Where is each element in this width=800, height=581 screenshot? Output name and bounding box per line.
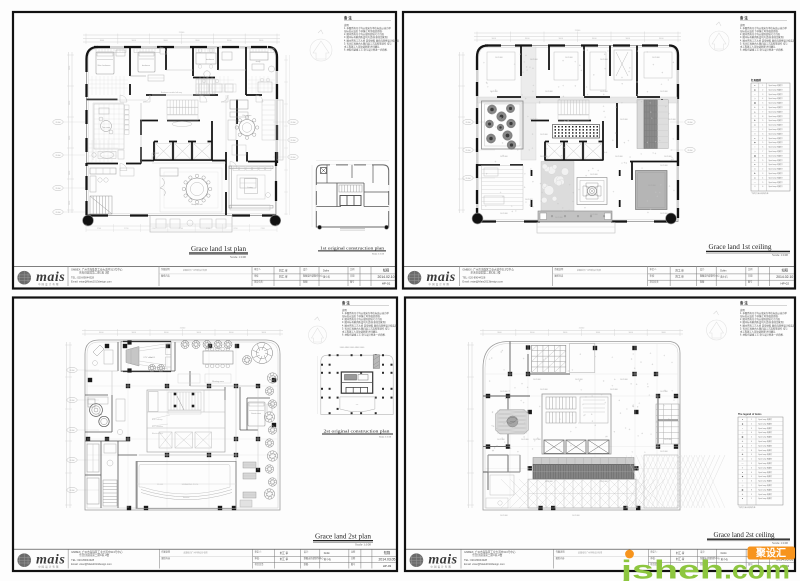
svg-text:2: 2	[762, 169, 763, 171]
svg-text:CH 2.800: CH 2.800	[620, 119, 628, 121]
svg-text:知翔: 知翔	[782, 268, 788, 273]
svg-text:5400 4800 5400 4800 5400: 5400 4800 5400 4800 5400	[340, 347, 365, 349]
svg-text:CH 2.800: CH 2.800	[540, 156, 548, 158]
svg-text:1: 1	[762, 85, 763, 87]
svg-text:5: 5	[762, 182, 763, 184]
svg-text:▲: ▲	[754, 163, 756, 166]
svg-text:3900: 3900	[69, 201, 71, 205]
svg-text:2F-A6: 2F-A6	[291, 139, 296, 142]
svg-text:说明: 说明	[344, 23, 349, 27]
svg-text:2F-A6: 2F-A6	[291, 156, 296, 159]
svg-text:CH 2.800: CH 2.800	[500, 213, 508, 215]
svg-text:刘工.审: 刘工.审	[280, 557, 289, 561]
svg-text:刘工.审: 刘工.审	[279, 268, 288, 272]
svg-text:CH 2.800: CH 2.800	[590, 214, 598, 216]
svg-text:SPA: SPA	[98, 413, 103, 416]
svg-text:说明: 说明	[342, 308, 347, 312]
svg-text:HP-03: HP-03	[383, 564, 392, 568]
svg-text:TEL: 020-89044328: TEL: 020-89044328	[462, 276, 485, 280]
svg-text:2F-3.05: 2F-3.05	[157, 484, 163, 486]
svg-text:Scale 1:100: Scale 1:100	[230, 256, 247, 259]
svg-text:2F-A6: 2F-A6	[70, 429, 75, 432]
svg-text:CH 2.800: CH 2.800	[648, 185, 656, 187]
svg-text:3900: 3900	[69, 171, 71, 175]
svg-text:2F-A6: 2F-A6	[56, 154, 61, 157]
svg-text:Banquet hall: Banquet hall	[191, 203, 203, 206]
svg-text:CH 2.800: CH 2.800	[600, 481, 608, 483]
svg-text:2014.02.10: 2014.02.10	[378, 275, 395, 279]
svg-text:CH 2.800: CH 2.800	[490, 91, 498, 93]
svg-text:CH 2.800: CH 2.800	[615, 156, 623, 158]
svg-text:8: 8	[762, 116, 763, 118]
svg-text:3900: 3900	[69, 66, 71, 70]
svg-text:刘工.审: 刘工.审	[675, 275, 684, 279]
svg-text:9: 9	[751, 494, 752, 496]
svg-text:2: 2	[751, 463, 752, 465]
svg-text:5: 5	[762, 142, 763, 144]
svg-text:9: 9	[751, 454, 752, 456]
svg-text:Bedroom corridor hall way: Bedroom corridor hall way	[161, 92, 182, 94]
svg-text:Meeting room: Meeting room	[212, 380, 224, 383]
svg-text:5: 5	[762, 103, 763, 105]
svg-text:刘工.审: 刘工.审	[280, 551, 289, 555]
svg-text:CH 2.800: CH 2.800	[530, 59, 538, 61]
svg-text:2F-A6: 2F-A6	[70, 489, 75, 492]
svg-text:2700: 2700	[261, 228, 265, 230]
svg-text:3900: 3900	[69, 136, 71, 140]
svg-text:1: 1	[751, 419, 752, 421]
svg-text:3: 3	[762, 133, 763, 135]
svg-text:Email: vstar@Mais2013design.co: Email: vstar@Mais2013design.com	[71, 562, 112, 566]
svg-text:Tea room: Tea room	[102, 127, 111, 129]
svg-text:Living: Living	[247, 187, 252, 189]
svg-text:乐天创意园第二期C栋 2楼: 乐天创意园第二期C栋 2楼	[471, 271, 501, 275]
svg-text:Electrical duct: Electrical duct	[152, 432, 164, 435]
svg-text:知翔: 知翔	[383, 268, 389, 273]
svg-text:CH 2.800: CH 2.800	[497, 439, 505, 441]
svg-text:2700: 2700	[179, 228, 183, 230]
svg-text:黄小石: 黄小石	[720, 275, 728, 279]
svg-text:GMBEX: 广州市海珠区工业大道中313号中心: GMBEX: 广州市海珠区工业大道中313号中心	[462, 267, 514, 271]
svg-text:bedroom: bedroom	[206, 59, 214, 61]
svg-text:备 注: 备 注	[343, 15, 352, 20]
svg-text:2F-A6: 2F-A6	[466, 177, 471, 180]
svg-text:3900: 3900	[69, 101, 71, 105]
svg-text:◎: ◎	[754, 124, 756, 127]
svg-text:6: 6	[762, 107, 763, 109]
svg-text:SPC chamber: SPC chamber	[152, 426, 164, 428]
svg-text:2F-A6: 2F-A6	[70, 399, 75, 402]
svg-text:CH 2.800: CH 2.800	[521, 439, 529, 441]
svg-text:Dolim: Dolim	[720, 269, 726, 272]
svg-text:Grace land 2st ceiling: Grace land 2st ceiling	[714, 530, 775, 539]
svg-text:2700: 2700	[151, 228, 155, 230]
svg-text:HP-01: HP-01	[382, 281, 391, 285]
svg-text:Grace land 1st plan: Grace land 1st plan	[191, 244, 246, 253]
svg-text:2F-A6: 2F-A6	[291, 121, 296, 124]
svg-text:2F-A6: 2F-A6	[688, 121, 693, 124]
svg-text:CH 2.800: CH 2.800	[660, 451, 668, 453]
svg-text:CH 2.800: CH 2.800	[660, 391, 668, 393]
svg-text:SWIMMING POOL: SWIMMING POOL	[182, 484, 200, 486]
svg-text:CH 2.800: CH 2.800	[600, 59, 608, 61]
svg-text:CH 2.800: CH 2.800	[668, 119, 676, 121]
svg-text:2F-A6: 2F-A6	[466, 149, 471, 152]
svg-text:▣: ▣	[742, 488, 744, 491]
svg-text:TEL: 020-89044328: TEL: 020-89044328	[71, 276, 94, 280]
svg-text:6: 6	[751, 481, 752, 483]
svg-text:Terrace: Terrace	[183, 497, 191, 499]
svg-text:黄小石: 黄小石	[323, 275, 331, 279]
svg-text:4: 4	[762, 138, 763, 140]
svg-text:CH 2.800: CH 2.800	[664, 156, 672, 158]
svg-text:CH 2.800: CH 2.800	[555, 217, 563, 219]
svg-text:3: 3	[751, 467, 752, 469]
svg-text:2014.03.05: 2014.03.05	[378, 557, 395, 561]
svg-text:Scale 1:150: Scale 1:150	[372, 253, 385, 255]
svg-text:CH 2.800: CH 2.800	[572, 515, 580, 517]
svg-text:6: 6	[751, 441, 752, 443]
svg-text:2F-A6: 2F-A6	[466, 121, 471, 124]
svg-text:1: 1	[751, 459, 752, 461]
svg-text:▲: ▲	[742, 444, 744, 447]
svg-text:CH 2.800: CH 2.800	[533, 379, 541, 381]
svg-text:4: 4	[751, 432, 752, 434]
svg-text:Scale 1:100: Scale 1:100	[772, 542, 789, 545]
svg-text:2F-A6: 2F-A6	[56, 211, 61, 214]
svg-text:Scale 1:100: Scale 1:100	[355, 543, 372, 546]
svg-text:GMBEX: 广州市海珠区工业大道中313号中心: GMBEX: 广州市海珠区工业大道中313号中心	[464, 550, 516, 554]
svg-text:HP-02: HP-02	[781, 281, 790, 285]
svg-text:2st original construction plan: 2st original construction plan	[324, 428, 391, 433]
svg-text:GMBEX: 广州市海珠区工业大道中313号中心: GMBEX: 广州市海珠区工业大道中313号中心	[71, 550, 123, 554]
svg-text:3: 3	[751, 428, 752, 430]
svg-text:—: —	[754, 182, 756, 184]
svg-text:CH 2.800: CH 2.800	[660, 213, 668, 215]
svg-text:1: 1	[762, 125, 763, 127]
svg-text:3: 3	[762, 173, 763, 175]
svg-text:2F-A6: 2F-A6	[56, 187, 61, 190]
svg-text:中国设计有限: 中国设计有限	[429, 282, 451, 286]
svg-text:中国设计有限: 中国设计有限	[38, 565, 60, 569]
svg-text:7: 7	[762, 111, 763, 113]
svg-text:知翔: 知翔	[384, 550, 390, 555]
svg-text:灯具图例: 灯具图例	[750, 78, 762, 82]
svg-text:刘工.审: 刘工.审	[675, 268, 684, 272]
svg-text:CH 2.800: CH 2.800	[590, 174, 598, 176]
svg-text:聚设汇: 聚设汇	[755, 547, 786, 560]
svg-text:▣: ▣	[754, 102, 756, 105]
svg-text:The legend of items: The legend of items	[738, 413, 762, 416]
svg-text:—: —	[754, 129, 756, 131]
svg-text:CH 2.800: CH 2.800	[540, 389, 548, 391]
svg-text:8: 8	[762, 155, 763, 157]
svg-text:2700: 2700	[206, 228, 210, 230]
svg-text:CH 2.800: CH 2.800	[500, 156, 508, 158]
svg-text:2: 2	[762, 89, 763, 91]
svg-text:5: 5	[751, 437, 752, 439]
svg-text:CH 2.800: CH 2.800	[575, 379, 583, 381]
svg-text:Grace land 1st ceiling: Grace land 1st ceiling	[709, 242, 772, 251]
svg-text:CH 2.800: CH 2.800	[545, 91, 553, 93]
svg-text:中国设计有限: 中国设计有限	[38, 282, 60, 286]
svg-text:Mas. bedroom: Mas. bedroom	[98, 65, 111, 67]
svg-text:Email: vstar@Mais2013design.co: Email: vstar@Mais2013design.com	[71, 280, 112, 284]
svg-text:TEL: 020-89044328: TEL: 020-89044328	[464, 558, 487, 562]
svg-text:2700: 2700	[124, 228, 128, 230]
svg-text:CH 2.800: CH 2.800	[530, 119, 538, 121]
svg-text:2700: 2700	[97, 228, 101, 230]
svg-text:4: 4	[751, 472, 752, 474]
svg-text:bedroom: bedroom	[142, 65, 150, 67]
svg-text:9: 9	[762, 120, 763, 122]
svg-text:21500: 21500	[179, 32, 185, 34]
svg-text:8: 8	[751, 489, 752, 491]
svg-text:KTV room: KTV room	[143, 357, 152, 359]
svg-text:黄小石: 黄小石	[324, 557, 332, 561]
svg-text:jsheh: jsheh	[619, 555, 724, 581]
svg-text:21500: 21500	[579, 328, 585, 330]
svg-text:7: 7	[751, 485, 752, 487]
svg-text:5: 5	[751, 476, 752, 478]
svg-text:2F-A6: 2F-A6	[688, 149, 693, 152]
svg-text:—: —	[742, 463, 744, 465]
svg-text:2F-A6: 2F-A6	[70, 369, 75, 372]
svg-text:CH 2.800: CH 2.800	[545, 481, 553, 483]
svg-text:1: 1	[751, 498, 752, 500]
svg-text:CH 2.800: CH 2.800	[620, 379, 628, 381]
svg-text:说明: 说明	[740, 23, 745, 27]
svg-text:7: 7	[751, 445, 752, 447]
svg-text:备 注: 备 注	[739, 300, 748, 305]
svg-text:2: 2	[751, 423, 752, 425]
svg-text:CH 2.800: CH 2.800	[540, 134, 548, 136]
svg-text:4: 4	[762, 98, 763, 100]
svg-text:CH 2.800: CH 2.800	[660, 165, 668, 167]
svg-text:说明: 说明	[740, 308, 745, 312]
svg-text:9: 9	[762, 160, 763, 162]
svg-text:CH 2.800: CH 2.800	[533, 439, 541, 441]
svg-text:刘工.审: 刘工.审	[279, 275, 288, 279]
svg-text:Scale 1:100: Scale 1:100	[772, 254, 789, 257]
svg-text:Scale 1:150: Scale 1:150	[379, 436, 392, 438]
svg-text:2700: 2700	[233, 228, 237, 230]
svg-text:CH 2.800: CH 2.800	[652, 57, 660, 59]
svg-text:CH 2.800: CH 2.800	[664, 439, 672, 441]
svg-text:▣: ▣	[742, 436, 744, 439]
svg-text:CH 2.800: CH 2.800	[500, 391, 508, 393]
svg-text:Email: vstar@Mais2013design.co: Email: vstar@Mais2013design.com	[464, 562, 505, 566]
svg-text:2F-A6: 2F-A6	[70, 459, 75, 462]
svg-text:study: study	[256, 60, 261, 63]
svg-text:CH 2.800: CH 2.800	[600, 91, 608, 93]
svg-text:3: 3	[762, 94, 763, 96]
svg-text:Dolim: Dolim	[324, 552, 330, 555]
svg-text:ELE. hallway: ELE. hallway	[152, 419, 162, 421]
svg-text:CH 2.800: CH 2.800	[610, 389, 618, 391]
svg-text:◎: ◎	[754, 176, 756, 179]
svg-text:▲: ▲	[754, 110, 756, 113]
svg-text:乐天创意园第二期C栋 2楼: 乐天创意园第二期C栋 2楼	[79, 553, 109, 557]
svg-text:1st original construction plan: 1st original construction plan	[320, 245, 385, 250]
svg-text:2014.02.10: 2014.02.10	[776, 275, 793, 279]
svg-text:备 注: 备 注	[739, 15, 748, 20]
svg-text:Email: vstar@Mais2013design.co: Email: vstar@Mais2013design.com	[462, 280, 503, 284]
svg-text:CH 2.800: CH 2.800	[525, 199, 533, 201]
svg-text:6: 6	[762, 147, 763, 149]
svg-text:CH 2.800: CH 2.800	[495, 57, 503, 59]
svg-text:21500: 21500	[180, 328, 186, 330]
svg-text:Grace land 2st plan: Grace land 2st plan	[315, 531, 371, 540]
svg-text:GMBEX: 广州市海珠区工业大道中313号中心: GMBEX: 广州市海珠区工业大道中313号中心	[71, 267, 123, 271]
svg-text:7: 7	[762, 151, 763, 153]
svg-text:6: 6	[762, 186, 763, 188]
svg-text:2F-A6: 2F-A6	[56, 121, 61, 124]
svg-text:TEL: 020-89044328: TEL: 020-89044328	[71, 558, 94, 562]
svg-text:CH 2.800: CH 2.800	[565, 57, 573, 59]
svg-text:▣: ▣	[754, 154, 756, 157]
svg-text:Dolim: Dolim	[323, 269, 329, 272]
svg-text:CH 2.800: CH 2.800	[660, 91, 668, 93]
svg-text:1: 1	[762, 164, 763, 166]
svg-text:乐天创意园第二期C栋 2楼: 乐天创意园第二期C栋 2楼	[472, 553, 502, 557]
svg-text:乐天创意园第二期C栋 2楼: 乐天创意园第二期C栋 2楼	[79, 271, 109, 275]
svg-text:备 注: 备 注	[341, 300, 350, 305]
svg-text:◎: ◎	[742, 458, 744, 461]
svg-text:CH 2.800: CH 2.800	[500, 515, 508, 517]
svg-text:2: 2	[762, 129, 763, 131]
svg-text:8: 8	[751, 450, 752, 452]
svg-text:xxx: xxx	[356, 404, 359, 406]
svg-text:4: 4	[762, 177, 763, 179]
svg-text:21500: 21500	[575, 30, 581, 32]
svg-text:中国设计有限: 中国设计有限	[430, 565, 452, 569]
svg-text:Guest room: Guest room	[251, 412, 261, 415]
svg-text:▲: ▲	[742, 497, 744, 500]
svg-text:Din. room: Din. room	[243, 115, 252, 117]
